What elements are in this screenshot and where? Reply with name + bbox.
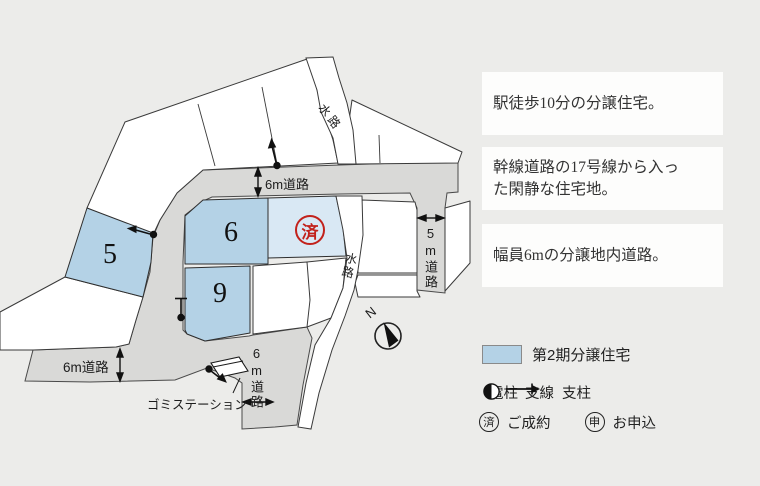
lot-6-number: 6: [224, 217, 238, 249]
feature-text-1: 駅徒歩10分の分譲住宅。: [493, 93, 664, 115]
legend-swatch: [482, 345, 522, 364]
lot-right-of-9: [253, 262, 310, 334]
legend-symbols-row: 電柱 支線 支柱: [482, 382, 591, 402]
legend-sold-label: ご成約: [507, 412, 551, 433]
north-compass-icon: [375, 322, 401, 349]
road-label-6m-top: 6m道路: [265, 174, 309, 193]
lot-upper-right: [348, 100, 462, 164]
lot-east-lower: [355, 275, 420, 297]
legend-phase-row: 第2期分譲住宅: [482, 344, 630, 365]
feature-text-2: 幹線道路の17号線から入った閑静な住宅地。: [493, 157, 689, 201]
feature-box-3: 幅員6mの分譲地内道路。: [482, 224, 723, 287]
road-label-6m-left: 6m道路: [63, 356, 109, 376]
feature-text-3: 幅員6mの分譲地内道路。: [493, 245, 668, 267]
lot-5-number: 5: [103, 239, 117, 271]
road-label-5m: 5m道路: [424, 226, 437, 290]
road-label-6m-bottom: 6m道路: [250, 346, 263, 410]
feature-box-1: 駅徒歩10分の分譲住宅。: [482, 72, 723, 135]
site-map-page: 6m道路 6m道路 6m道路 5m道路 ゴミステーション 水路 水路 N 5 6…: [0, 0, 760, 486]
lot-right-of-5m-road: [445, 201, 470, 291]
lot-9-number: 9: [213, 278, 227, 310]
lot-east-upper: [356, 200, 417, 273]
legend-phase-label: 第2期分譲住宅: [532, 344, 630, 365]
garbage-station-label: ゴミステーション: [147, 394, 247, 413]
sold-stamp: 済: [295, 215, 325, 245]
sold-mark-icon: 済: [479, 412, 499, 432]
feature-box-2: 幹線道路の17号線から入った閑静な住宅地。: [482, 147, 723, 210]
legend-applied-label: お申込: [613, 412, 657, 433]
applied-mark-icon: 申: [585, 412, 605, 432]
legend-status-row: 済 ご成約 申 お申込: [479, 411, 656, 433]
half-circle-pole-icon: [482, 382, 501, 401]
legend-post-label: 支柱: [562, 382, 591, 403]
support-post-icon: [505, 382, 535, 396]
